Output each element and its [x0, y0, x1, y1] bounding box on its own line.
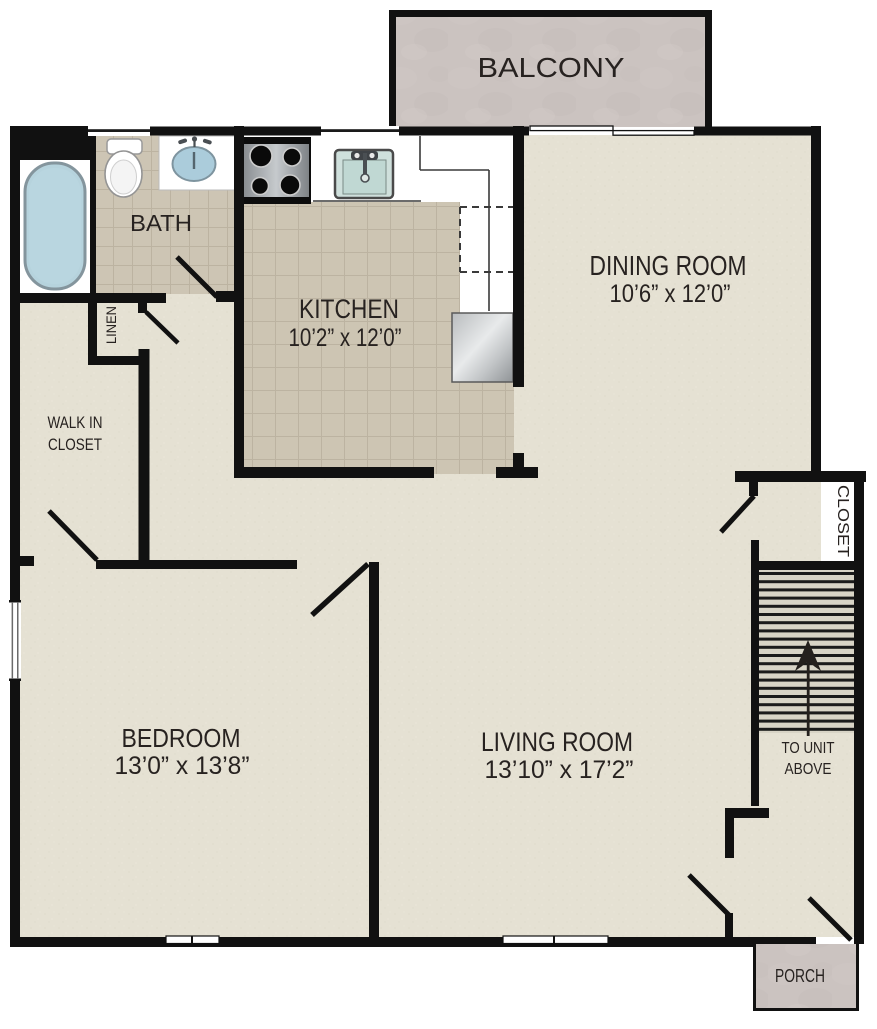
svg-text:BALCONY: BALCONY — [478, 52, 625, 83]
svg-text:ABOVE: ABOVE — [785, 761, 832, 778]
svg-text:BEDROOM: BEDROOM — [122, 723, 241, 753]
svg-text:TO UNIT: TO UNIT — [782, 740, 835, 757]
svg-text:DINING ROOM: DINING ROOM — [590, 250, 747, 281]
svg-text:KITCHEN: KITCHEN — [299, 294, 399, 324]
svg-text:BATH: BATH — [130, 210, 192, 236]
svg-text:LINEN: LINEN — [103, 306, 119, 344]
svg-text:CLOSET: CLOSET — [834, 485, 851, 557]
svg-text:10’6” x 12’0”: 10’6” x 12’0” — [610, 280, 731, 308]
svg-text:10’2” x 12’0”: 10’2” x 12’0” — [289, 324, 402, 352]
svg-text:13’10” x 17’2”: 13’10” x 17’2” — [485, 756, 634, 784]
svg-text:PORCH: PORCH — [775, 966, 825, 986]
svg-text:13’0” x 13’8”: 13’0” x 13’8” — [115, 752, 250, 780]
svg-text:LIVING ROOM: LIVING ROOM — [481, 727, 633, 757]
svg-text:CLOSET: CLOSET — [48, 436, 102, 454]
svg-text:WALK IN: WALK IN — [48, 414, 103, 432]
